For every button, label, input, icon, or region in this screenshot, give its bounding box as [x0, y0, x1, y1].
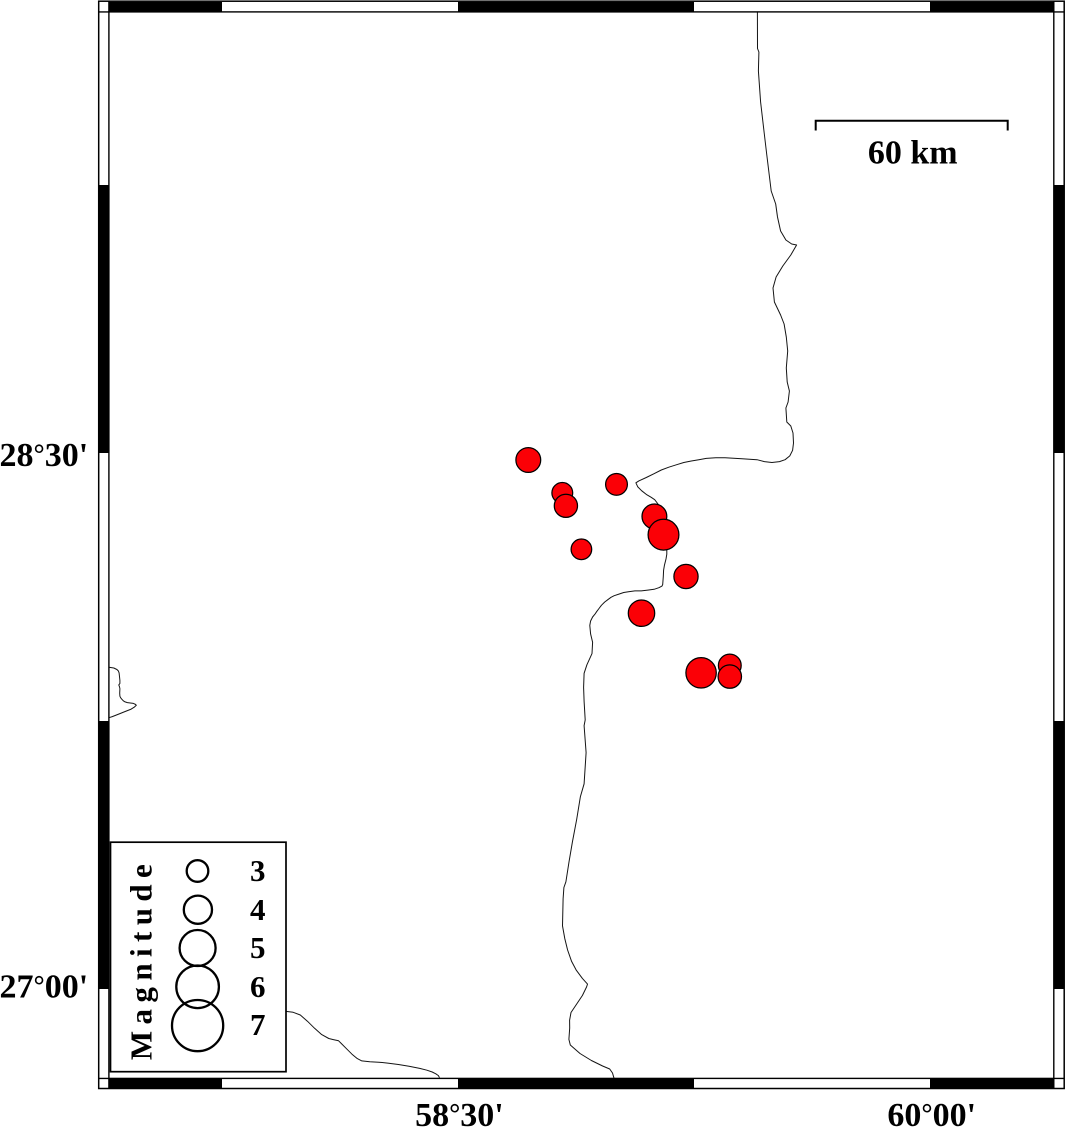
svg-text:27°00': 27°00' [0, 969, 88, 1006]
svg-text:60 km: 60 km [868, 135, 958, 172]
svg-text:5: 5 [250, 930, 266, 965]
svg-text:58°30': 58°30' [415, 1097, 504, 1127]
svg-text:7: 7 [250, 1007, 266, 1042]
svg-text:Magnitude: Magnitude [124, 858, 159, 1060]
svg-text:6: 6 [250, 969, 266, 1004]
svg-text:28°30': 28°30' [0, 437, 88, 474]
svg-text:3: 3 [250, 853, 266, 888]
svg-text:60°00': 60°00' [887, 1097, 976, 1127]
svg-text:4: 4 [250, 892, 266, 927]
